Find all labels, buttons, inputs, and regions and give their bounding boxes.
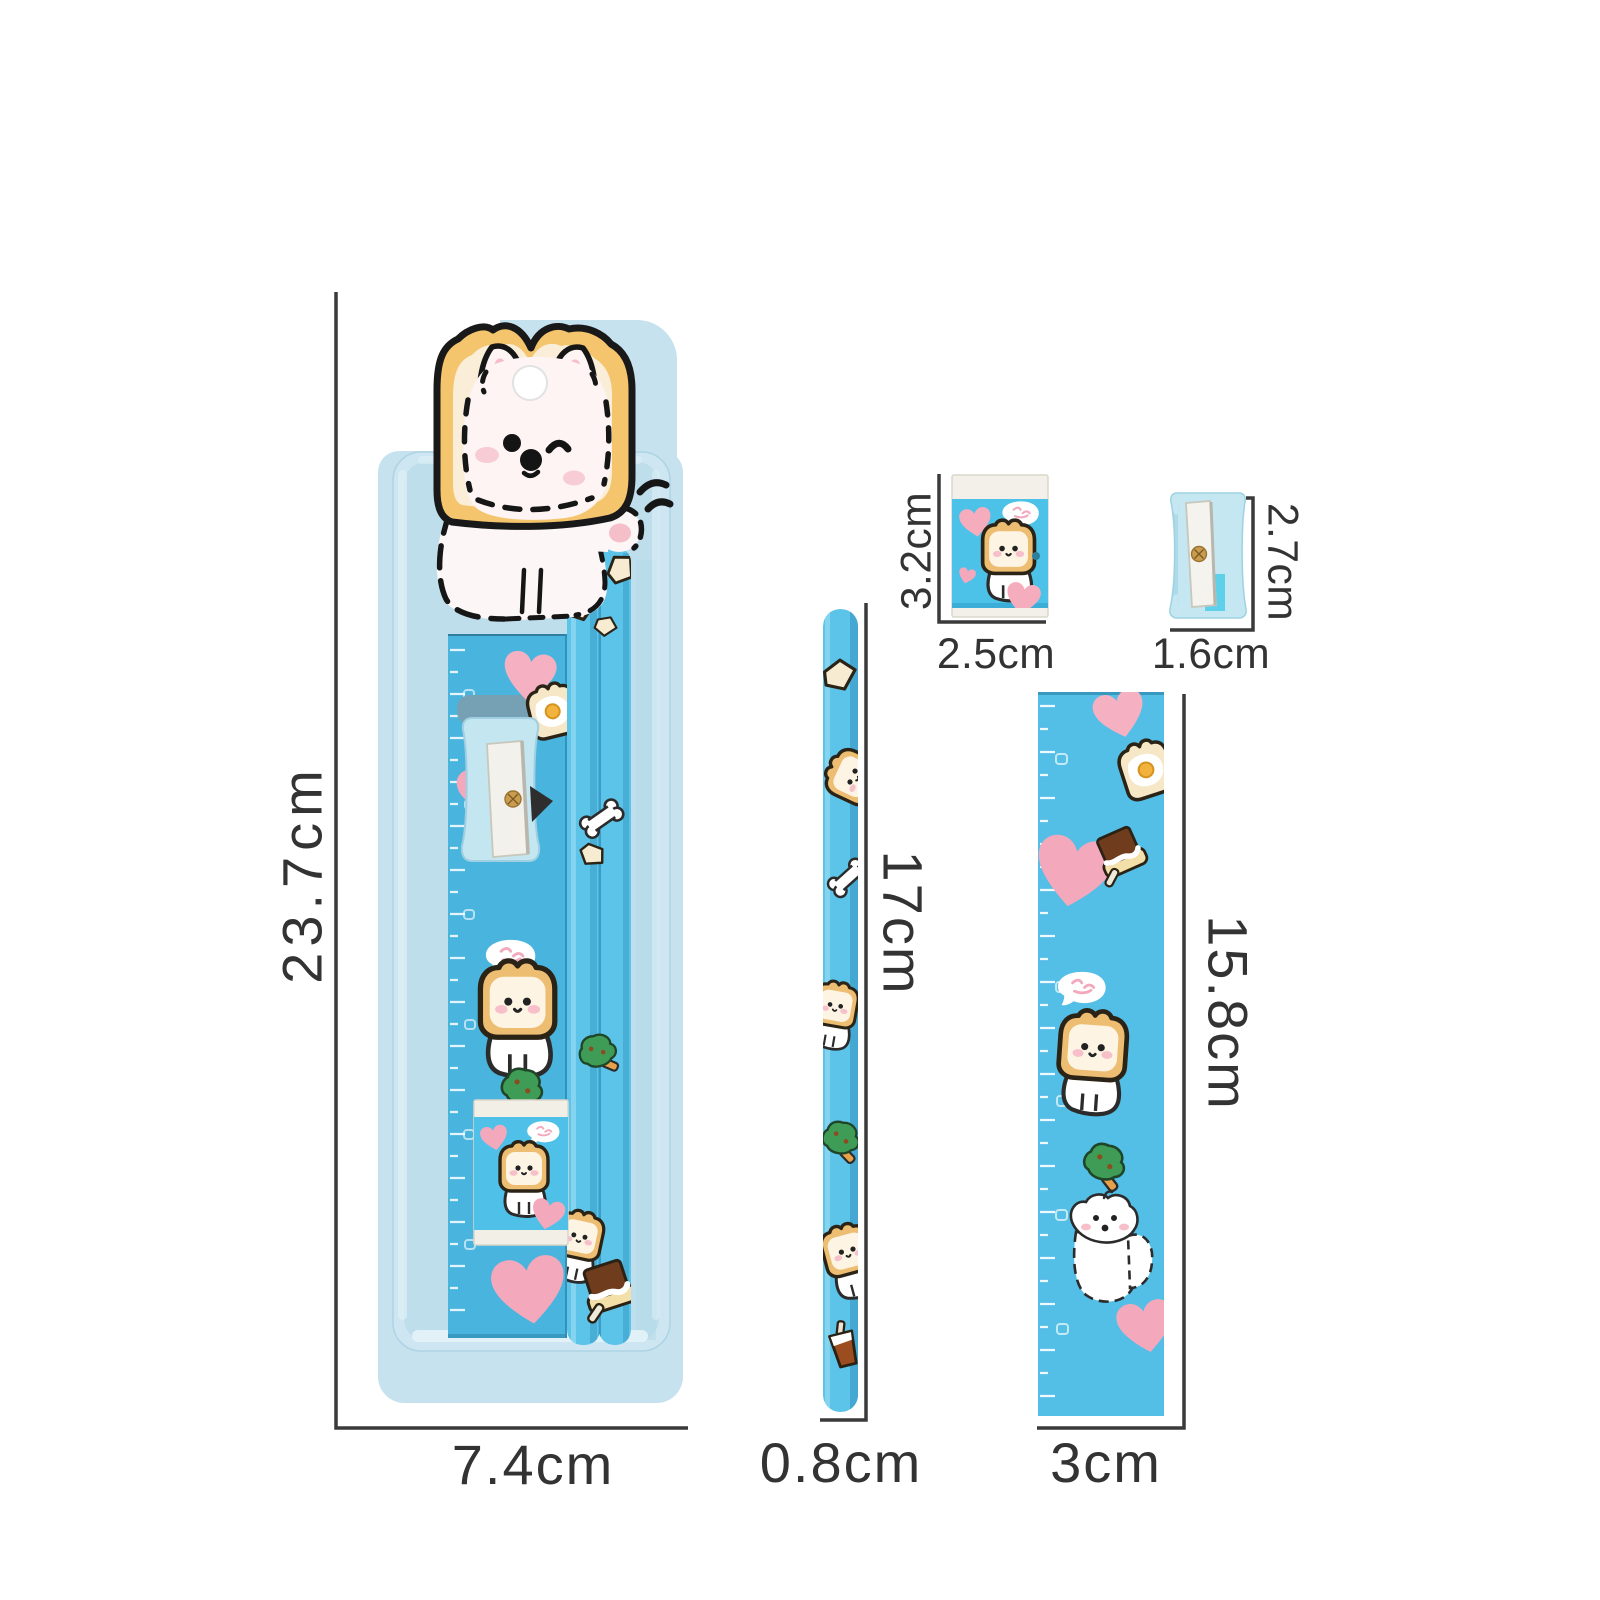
svg-text:3cm: 3cm [1050, 1431, 1162, 1494]
svg-text:23.7cm: 23.7cm [271, 764, 334, 984]
svg-text:3.2cm: 3.2cm [894, 492, 941, 610]
svg-text:15.8cm: 15.8cm [1197, 915, 1260, 1111]
svg-text:2.7cm: 2.7cm [1259, 503, 1306, 621]
svg-text:2.5cm: 2.5cm [937, 631, 1055, 678]
svg-text:7.4cm: 7.4cm [452, 1433, 615, 1496]
svg-text:0.8cm: 0.8cm [760, 1431, 923, 1494]
svg-text:17cm: 17cm [872, 851, 935, 996]
svg-text:1.6cm: 1.6cm [1152, 631, 1270, 678]
